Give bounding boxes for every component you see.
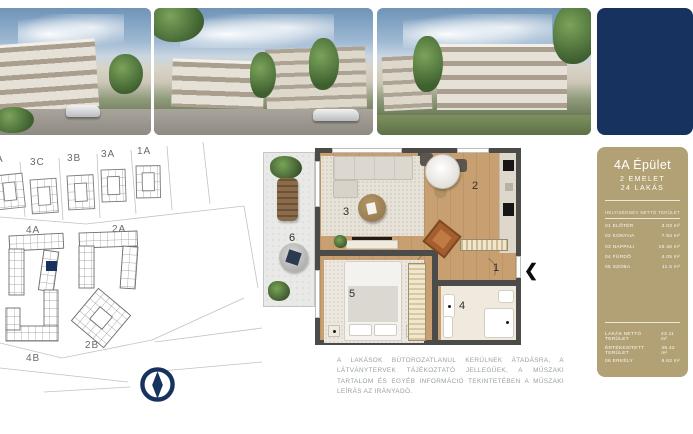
plant-art <box>334 235 347 248</box>
grass-art <box>377 115 591 135</box>
car-art <box>313 109 359 121</box>
summary-value: 46.42 m² <box>661 346 680 356</box>
room-number-living: 3 <box>343 206 349 218</box>
room-area: 7.94 m² <box>662 234 680 239</box>
room-number-balcony: 6 <box>289 232 295 244</box>
table-header-row: HELYISÉGNÉV NETTÓ TERÜLET <box>605 210 680 219</box>
accent-chair-seat <box>432 229 452 249</box>
table-row: 05 SZOBA 11.5 m² <box>605 265 680 270</box>
building-2b-outline <box>71 288 130 347</box>
bed-art <box>344 261 402 341</box>
entrance-door-gap <box>516 256 521 278</box>
wardrobe-art <box>408 263 426 341</box>
apartment-floor-plan: 1 2 3 4 5 6 <box>263 148 521 345</box>
plant-art <box>268 281 290 301</box>
room-number-bath: 4 <box>459 300 465 312</box>
room-label: 01 ELŐTÉR <box>605 224 634 229</box>
pillow-art <box>374 324 397 336</box>
room-area-table: HELYISÉGNÉV NETTÓ TERÜLET 01 ELŐTÉR 3.03… <box>605 210 680 270</box>
pillow-art <box>349 324 372 336</box>
building-render-photo-3 <box>377 8 591 135</box>
radiator-art <box>460 239 508 251</box>
cushion-art <box>285 249 301 265</box>
tv-console-art <box>346 240 398 249</box>
plot-label: 3A <box>101 149 115 160</box>
plot-label: 4B <box>26 353 40 364</box>
room-area: 3.03 m² <box>662 224 680 229</box>
toilet-art <box>498 290 514 303</box>
table-row: 04 FÜRDŐ 4.05 m² <box>605 255 680 260</box>
disclaimer-text: A LAKÁSOK BÚTOROZATLANUL KERÜLNEK ÁTADÁS… <box>337 356 564 398</box>
plot-label: 3B <box>67 153 81 164</box>
table-row: 03 NAPPALI 16.46 m² <box>605 245 680 250</box>
balcony-table-art <box>279 243 308 272</box>
shower-art <box>484 308 514 338</box>
plot-label: A <box>0 154 4 165</box>
washer-art <box>443 316 453 338</box>
room-label: 03 NAPPALI <box>605 245 635 250</box>
room-label: 04 FÜRDŐ <box>605 255 631 260</box>
bathroom-area <box>441 286 516 340</box>
car-art <box>66 105 100 117</box>
room-label: 02 KONYHA <box>605 234 635 239</box>
sofa-art <box>333 156 413 180</box>
blanket-art <box>348 286 398 322</box>
living-room <box>320 153 516 340</box>
plot-label: 2A <box>112 224 126 235</box>
summary-label: ÉRTÉKESÍTETT TERÜLET <box>605 346 661 356</box>
building-illustration <box>0 38 99 113</box>
summary-label: LAKÁS NETTÓ TERÜLET <box>605 332 661 342</box>
entrance-arrow-icon: ❮ <box>524 261 538 281</box>
faucet-art <box>448 305 451 308</box>
brand-color-block <box>597 8 693 135</box>
header-room-name: HELYISÉGNÉV <box>605 210 639 215</box>
room-area: 4.05 m² <box>662 255 680 260</box>
summary-row: 06 ERKÉLY 6.62 m² <box>605 359 680 364</box>
room-label: 05 SZOBA <box>605 265 630 270</box>
summary-value: 6.62 m² <box>662 359 680 364</box>
divider <box>605 200 680 201</box>
building-render-photo-2 <box>154 8 373 135</box>
plot-label: 2B <box>85 340 99 351</box>
area-summary: LAKÁS NETTÓ TERÜLET 43.11 m² ÉRTÉKESÍTET… <box>605 322 680 364</box>
plant-art <box>270 156 302 179</box>
table-row: 01 ELŐTÉR 3.03 m² <box>605 224 680 229</box>
building-title: 4A Épület <box>605 158 680 172</box>
summary-row: LAKÁS NETTÓ TERÜLET 43.11 m² <box>605 332 680 342</box>
lounge-chair-art <box>277 178 298 221</box>
unit-count-label: 24 LAKÁS <box>605 185 680 192</box>
balcony-area <box>263 152 315 307</box>
highlighted-unit-4a <box>46 261 57 271</box>
plot-label: 4A <box>26 225 40 236</box>
nightstand-art <box>328 325 340 337</box>
apartment-walls <box>315 148 521 345</box>
tree-art <box>553 8 591 64</box>
building-illustration <box>437 44 567 110</box>
building-4a-outline <box>9 233 64 295</box>
building-2a-outline <box>79 231 138 289</box>
sink-art <box>443 294 455 318</box>
header-net-area: NETTÓ TERÜLET <box>640 210 680 215</box>
summary-value: 43.11 m² <box>661 332 680 342</box>
building-render-photo-1 <box>0 8 151 135</box>
plot-label: 1A <box>137 146 151 157</box>
dining-table-art <box>425 154 460 189</box>
sink-art <box>503 160 514 171</box>
cooktop-art <box>503 203 514 216</box>
tree-art <box>109 54 143 94</box>
summary-row: ÉRTÉKESÍTETT TERÜLET 46.42 m² <box>605 346 680 356</box>
building-outlines-top-row <box>0 166 161 214</box>
room-number-hall: 1 <box>493 262 499 274</box>
unit-info-panel: 4A Épület 2 EMELET 24 LAKÁS HELYISÉGNÉV … <box>597 147 688 377</box>
compass-icon <box>140 367 175 402</box>
decor-art <box>366 202 377 215</box>
drain-art <box>506 321 509 324</box>
summary-label: 06 ERKÉLY <box>605 359 633 364</box>
kitchen-counter-art <box>499 153 516 253</box>
plot-label: 3C <box>30 157 45 168</box>
lamp-art <box>333 330 336 333</box>
room-area: 11.5 m² <box>662 265 680 270</box>
coffee-table-art <box>358 194 386 222</box>
room-number-kitchen: 2 <box>472 180 478 192</box>
table-row: 02 KONYHA 7.94 m² <box>605 234 680 239</box>
chaise-art <box>333 180 358 198</box>
room-number-bedroom: 5 <box>349 288 355 300</box>
floor-label: 2 EMELET <box>605 176 680 183</box>
counter-item-art <box>505 183 513 191</box>
brochure-page: 4A Épület 2 EMELET 24 LAKÁS HELYISÉGNÉV … <box>0 0 693 434</box>
room-area: 16.46 m² <box>659 245 680 250</box>
site-plan-map: A 3C 3B 3A 1A 4A 2A 4B 2B <box>0 140 263 434</box>
building-4b-outline <box>6 290 58 341</box>
